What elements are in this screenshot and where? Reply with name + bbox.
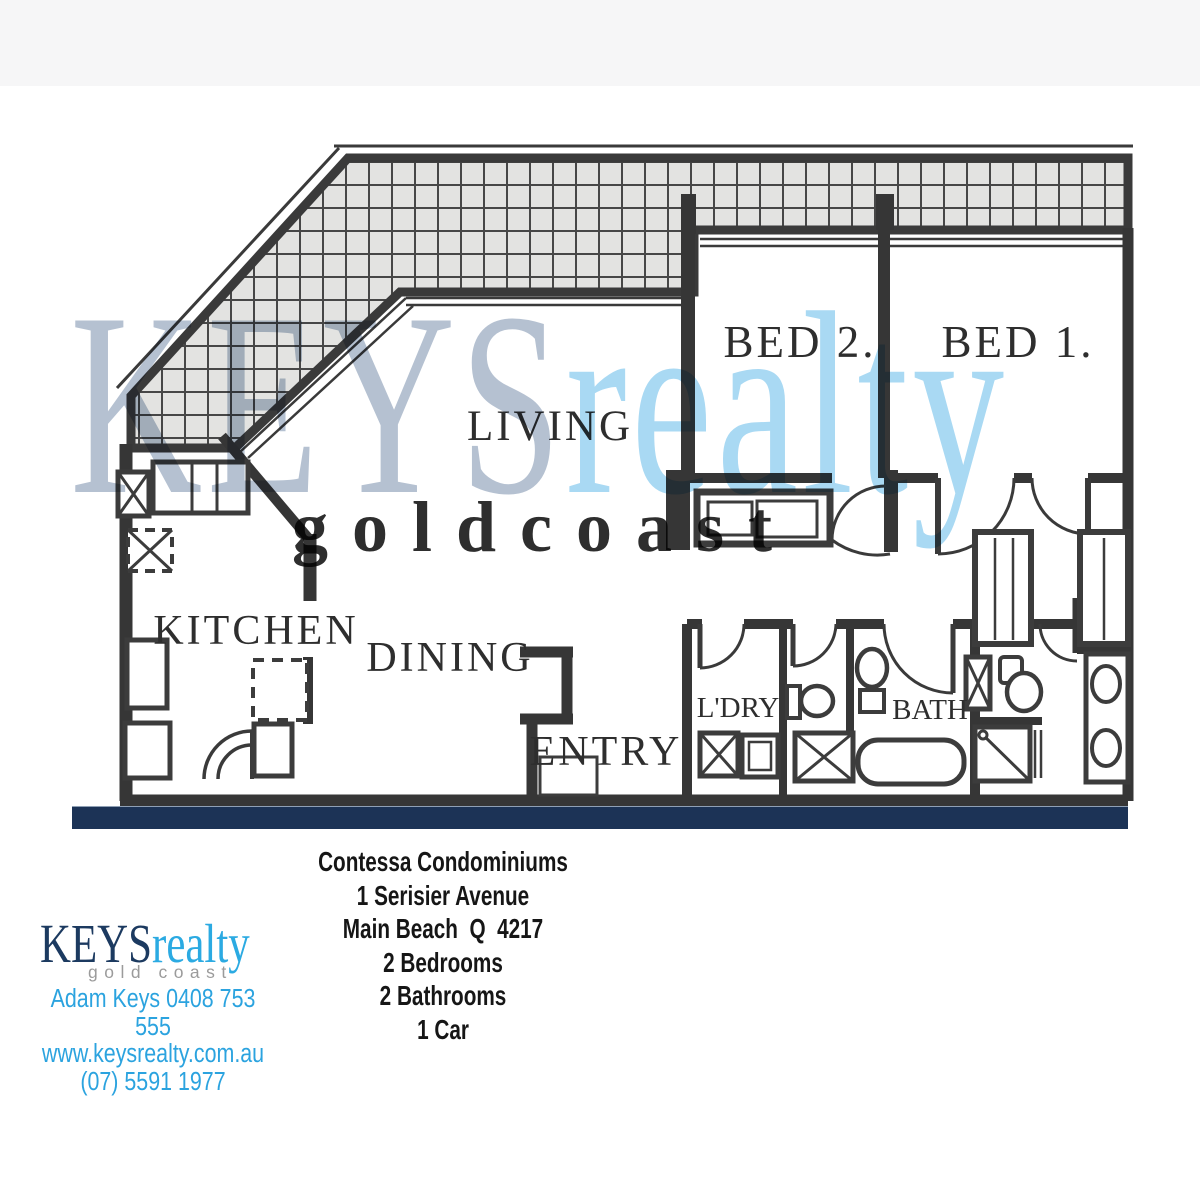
- room-label-entry: ENTRY: [530, 729, 683, 775]
- logo-tagline: gold coast: [88, 962, 233, 983]
- agency-phone: (07) 5591 1977: [33, 1069, 273, 1097]
- property-bedrooms: 2 Bedrooms: [288, 946, 599, 980]
- agent-phone-line: Adam Keys 0408 753 555: [33, 986, 273, 1041]
- agency-contact: Adam Keys 0408 753 555 www.keysrealty.co…: [33, 986, 273, 1096]
- property-bathrooms: 2 Bathrooms: [288, 979, 599, 1013]
- room-label-dining: DINING: [366, 635, 533, 681]
- property-details: Contessa Condominiums 1 Serisier Avenue …: [288, 845, 599, 1047]
- property-street: 1 Serisier Avenue: [288, 879, 599, 913]
- wc-toilet: [787, 686, 833, 718]
- watermark-tagline: g o l d c o a s t: [292, 487, 775, 567]
- flyer-page: LIVING BED 2. BED 1. KITCHEN DINING ENTR…: [0, 0, 1200, 1200]
- agency-website: www.keysrealty.com.au: [33, 1041, 273, 1069]
- room-label-bath: BATH: [892, 694, 968, 726]
- balcony-pillar: [876, 194, 894, 230]
- property-suburb: Main Beach Q 4217: [288, 912, 599, 946]
- property-name: Contessa Condominiums: [288, 845, 599, 879]
- room-label-kitchen: KITCHEN: [153, 608, 358, 654]
- watermark: KEYSrealty g o l d c o a s t: [70, 258, 1008, 567]
- room-label-laundry: L'DRY: [697, 692, 780, 724]
- navy-divider-bar: [72, 806, 1128, 829]
- laundry-fixtures: [700, 733, 778, 777]
- property-car: 1 Car: [288, 1013, 599, 1047]
- balcony-rail-bedrooms: [700, 239, 1124, 246]
